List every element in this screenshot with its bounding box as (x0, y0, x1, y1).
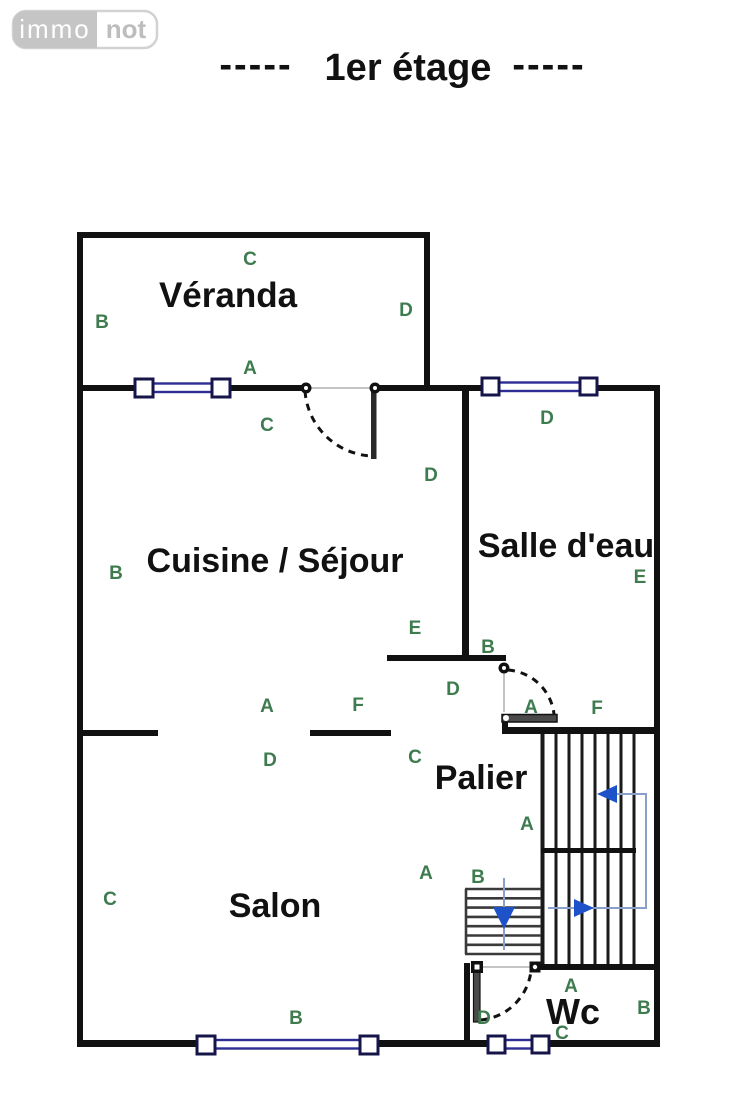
svg-text:-----: ----- (219, 44, 292, 86)
svg-text:D: D (540, 408, 554, 429)
svg-text:Véranda: Véranda (159, 276, 298, 315)
svg-text:B: B (289, 1008, 303, 1029)
svg-text:1er étage: 1er étage (325, 47, 492, 89)
svg-text:D: D (446, 679, 460, 700)
svg-text:D: D (399, 300, 413, 321)
svg-text:D: D (263, 750, 277, 771)
svg-text:-----: ----- (512, 44, 585, 86)
svg-text:F: F (591, 698, 603, 719)
svg-text:B: B (95, 312, 109, 333)
svg-text:A: A (419, 863, 433, 884)
svg-text:B: B (481, 637, 495, 658)
svg-text:A: A (520, 814, 534, 835)
svg-text:D: D (477, 1008, 491, 1029)
svg-text:B: B (109, 563, 123, 584)
svg-text:C: C (103, 889, 117, 910)
svg-text:A: A (564, 976, 578, 997)
svg-text:D: D (424, 465, 438, 486)
svg-text:A: A (260, 696, 274, 717)
svg-text:Palier: Palier (435, 759, 528, 797)
svg-text:C: C (408, 747, 422, 768)
svg-text:B: B (471, 867, 485, 888)
svg-text:not: not (106, 14, 147, 44)
svg-text:A: A (524, 697, 538, 718)
svg-text:Salle d'eau: Salle d'eau (478, 527, 654, 565)
svg-text:F: F (352, 695, 364, 716)
svg-text:Salon: Salon (229, 887, 322, 925)
svg-text:E: E (409, 618, 422, 639)
svg-text:C: C (243, 249, 257, 270)
svg-text:E: E (634, 567, 647, 588)
svg-text:immo: immo (19, 14, 91, 44)
svg-text:A: A (243, 358, 257, 379)
svg-text:C: C (260, 415, 274, 436)
svg-text:Wc: Wc (546, 991, 600, 1032)
svg-text:Cuisine / Séjour: Cuisine / Séjour (147, 542, 404, 580)
svg-text:C: C (555, 1023, 569, 1044)
svg-text:B: B (637, 998, 651, 1019)
